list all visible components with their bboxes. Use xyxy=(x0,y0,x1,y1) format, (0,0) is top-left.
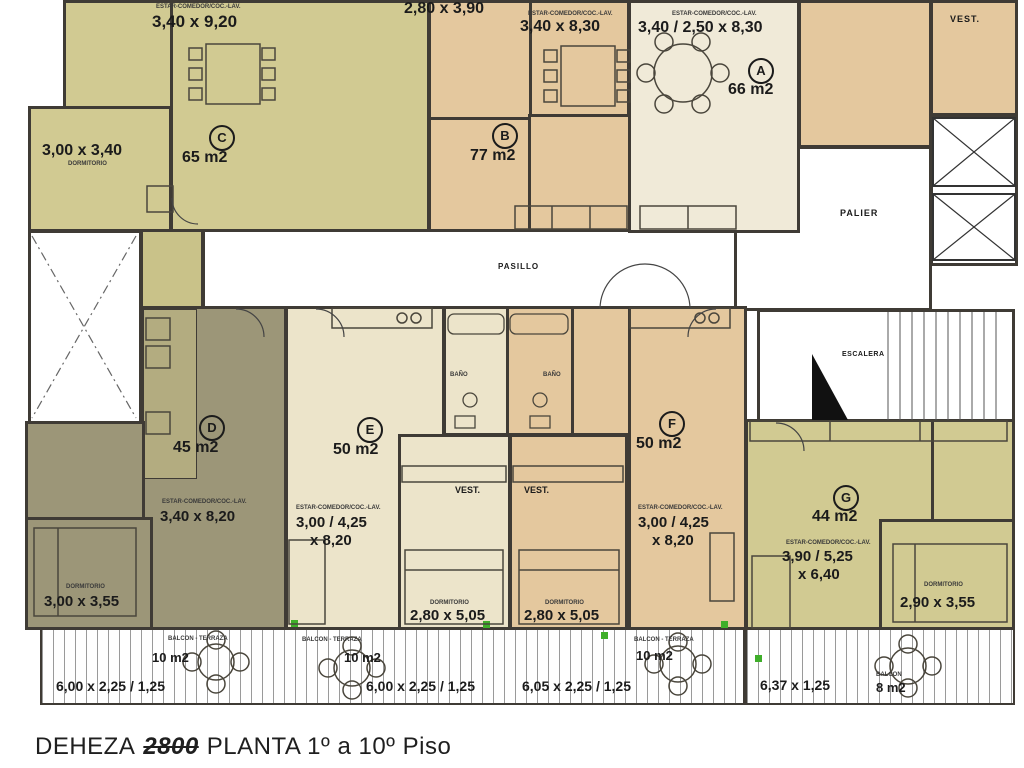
room-label: PASILLO xyxy=(498,263,539,271)
unit-a-suite xyxy=(798,0,932,148)
balcony-area: 8 m2 xyxy=(876,681,906,694)
dim-label: 2,80 x 5,05 xyxy=(410,608,485,623)
room-label: BAÑO xyxy=(450,372,468,378)
unit-letter-e: E xyxy=(357,417,383,443)
room-label: VEST. xyxy=(524,486,549,495)
balcony-area: 10 m2 xyxy=(152,651,189,664)
dim-label: 3,40 x 8,30 xyxy=(520,19,600,35)
area-label: 44 m2 xyxy=(812,509,857,525)
balcony-dim: 6,00 x 2,25 / 1,25 xyxy=(366,679,475,693)
dim-label: x 6,40 xyxy=(798,567,840,582)
dim-label: 3,40 x 9,20 xyxy=(152,13,237,30)
bath-twin-right xyxy=(506,306,574,436)
room-label: ESTAR-COMEDOR/COC.-LAV. xyxy=(672,11,757,17)
corridor-pasillo xyxy=(202,229,760,309)
balcony-name: BALCON - TERRAZA xyxy=(634,637,694,643)
dim-label: 3,00 / 4,25 xyxy=(296,515,367,530)
room-label: DORMITORIO xyxy=(68,161,107,167)
unit-f-entry xyxy=(571,306,631,436)
room-label: VEST. xyxy=(950,15,980,24)
dim-label: x 8,20 xyxy=(652,533,694,548)
room-label: ESTAR-COMEDOR/COC.-LAV. xyxy=(638,505,723,511)
unit-f-living xyxy=(628,306,747,630)
unit-g-bedroom xyxy=(879,519,1015,630)
area-label: 77 m2 xyxy=(470,148,515,164)
room-label: DORMITORIO xyxy=(430,600,469,606)
area-label: 65 m2 xyxy=(182,150,227,166)
room-label: BAÑO xyxy=(543,372,561,378)
dim-label: 3,00 x 3,55 xyxy=(44,594,119,609)
unit-c-living xyxy=(170,0,430,232)
room-label: VEST. xyxy=(455,486,480,495)
unit-b-bath xyxy=(528,114,632,232)
stair-hall xyxy=(757,309,1015,423)
void-courtyard xyxy=(28,230,142,425)
room-label: PALIER xyxy=(840,209,878,218)
unit-letter-c: C xyxy=(209,125,235,151)
threshold-marker xyxy=(291,620,298,627)
unit-c-bedroom xyxy=(28,106,172,232)
bath-twin-left xyxy=(443,306,509,436)
room-label: DORMITORIO xyxy=(66,584,105,590)
threshold-marker xyxy=(755,655,762,662)
unit-d-bedroom xyxy=(25,517,153,630)
room-label: ESTAR-COMEDOR/COC.-LAV. xyxy=(528,11,613,17)
room-label: ESCALERA xyxy=(842,351,885,358)
balcony-area: 10 m2 xyxy=(636,649,673,662)
dim-label: 2,80 x 3,90 xyxy=(404,1,484,17)
dim-label: 3,00 x 3,40 xyxy=(42,143,122,159)
unit-letter-b: B xyxy=(492,123,518,149)
area-label: 66 m2 xyxy=(728,82,773,98)
room-label: DORMITORIO xyxy=(924,582,963,588)
dim-label: 2,80 x 5,05 xyxy=(524,608,599,623)
balcony-dim: 6,00 x 2,25 / 1,25 xyxy=(56,679,165,693)
threshold-marker xyxy=(601,632,608,639)
dim-label: 3,90 / 5,25 xyxy=(782,549,853,564)
threshold-marker xyxy=(721,621,728,628)
balcony-dim: 6,05 x 2,25 / 1,25 xyxy=(522,679,631,693)
unit-g-bath xyxy=(931,419,1015,523)
balcony-area: 10 m2 xyxy=(344,651,381,664)
dim-label: x 8,20 xyxy=(310,533,352,548)
dim-label: 2,90 x 3,55 xyxy=(900,595,975,610)
title-rest: PLANTA 1º a 10º Piso xyxy=(207,733,452,760)
room-label: ESTAR-COMEDOR/COC.-LAV. xyxy=(786,540,871,546)
room-label: DORMITORIO xyxy=(545,600,584,606)
unit-b-bedroom xyxy=(428,0,532,120)
floor-plan: ESTAR-COMEDOR/COC.-LAV. 3,40 x 9,20 C 65… xyxy=(0,0,1024,768)
title-number-struck: 2800 xyxy=(143,733,198,760)
room-label: ESTAR-COMEDOR/COC.-LAV. xyxy=(162,499,247,505)
balcony-name: BALCON - TERRAZA xyxy=(302,637,362,643)
area-label: 45 m2 xyxy=(173,440,218,456)
dim-label: 3,40 x 8,20 xyxy=(160,509,235,524)
room-label: ESTAR-COMEDOR/COC.-LAV. xyxy=(156,4,241,10)
dim-label: 3,40 / 2,50 x 8,30 xyxy=(638,20,763,36)
balcony-dim: 6,37 x 1,25 xyxy=(760,678,830,692)
plan-title: DEHEZA2800PLANTA 1º a 10º Piso xyxy=(35,733,451,761)
unit-letter-d: D xyxy=(199,415,225,441)
balcony-name: BALCON xyxy=(876,672,902,678)
room-label: ESTAR-COMEDOR/COC.-LAV. xyxy=(296,505,381,511)
unit-d-kitchen-top xyxy=(140,229,204,309)
dim-label: 3,00 / 4,25 xyxy=(638,515,709,530)
balcony-name: BALCON - TERRAZA xyxy=(168,636,228,642)
title-street: DEHEZA xyxy=(35,733,135,760)
elevator-shaft xyxy=(930,114,1018,266)
unit-d-bath xyxy=(25,421,145,523)
area-label: 50 m2 xyxy=(636,436,681,452)
area-label: 50 m2 xyxy=(333,442,378,458)
unit-letter-f: F xyxy=(659,411,685,437)
